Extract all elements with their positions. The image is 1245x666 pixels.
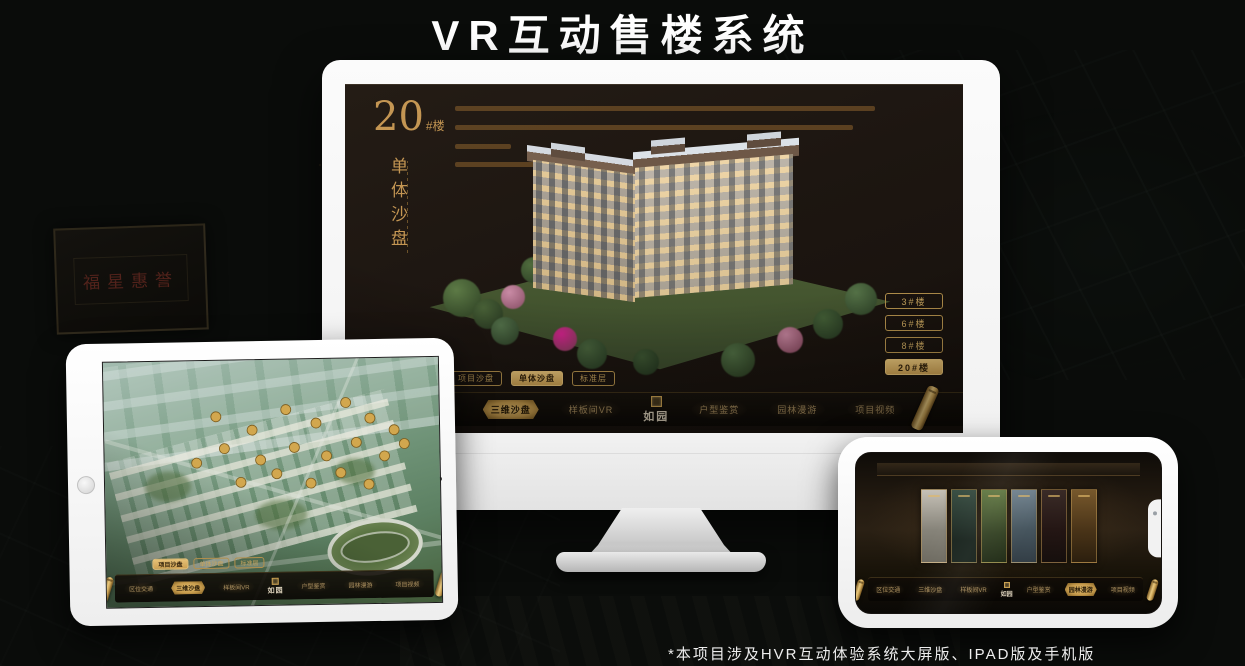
tree: [577, 339, 607, 369]
scroll-icon[interactable]: [1145, 578, 1158, 601]
nav-item-project-video[interactable]: 项目视频: [390, 577, 424, 591]
floor-button-6[interactable]: 6#楼: [885, 315, 943, 331]
subtab-single-sandbox[interactable]: 单体沙盘: [193, 558, 229, 570]
building-facade-left: [533, 160, 635, 302]
scene-panel[interactable]: [1011, 489, 1037, 563]
nav-item-garden-roam[interactable]: 园林漫游: [1065, 583, 1097, 596]
roof-gable: [651, 138, 685, 155]
subtab-standard-floor[interactable]: 标准层: [572, 371, 615, 386]
nav-item-3d-sandbox[interactable]: 三维沙盘: [914, 583, 946, 596]
nav-item-location[interactable]: 区位交通: [872, 583, 904, 596]
page-title: VR互动售楼系统: [0, 2, 1245, 63]
description-line: [455, 125, 853, 130]
nav-item-3d-sandbox[interactable]: 三维沙盘: [171, 581, 205, 595]
scene-panel[interactable]: [981, 489, 1007, 563]
tablet-device: 项目沙盘 单体沙盘 标准层 区位交通 三维沙盘 样板间VR 如园 户型鉴赏 园林…: [66, 338, 459, 627]
flower-tree: [501, 285, 525, 309]
nav-item-unit-gallery[interactable]: 户型鉴赏: [1023, 583, 1055, 596]
nav-item-project-video[interactable]: 项目视频: [1107, 583, 1139, 596]
subtab-project-sandbox[interactable]: 项目沙盘: [450, 371, 502, 386]
app-logo-text: 如园: [1001, 589, 1013, 598]
scene-panel[interactable]: [1041, 489, 1067, 563]
scene-panel[interactable]: [1071, 489, 1097, 563]
app-logo-text: 如园: [267, 585, 283, 595]
scene-panel[interactable]: [921, 489, 947, 563]
home-button[interactable]: [77, 476, 95, 494]
monitor-stand: [586, 508, 736, 558]
tree: [633, 349, 659, 375]
tree: [813, 309, 843, 339]
floor-button-group: 3#楼 6#楼 8#楼 20#楼: [885, 293, 943, 375]
nav-item-3d-sandbox[interactable]: 三维沙盘: [483, 400, 539, 419]
subtitle-divider: [407, 161, 408, 253]
app-logo: 如园: [267, 577, 283, 595]
floor-button-8[interactable]: 8#楼: [885, 337, 943, 353]
nav-item-showroom-vr[interactable]: 样板间VR: [218, 580, 255, 594]
app-logo: 如园: [643, 396, 669, 424]
nav-item-unit-gallery[interactable]: 户型鉴赏: [296, 579, 330, 593]
background-plaque: 福星惠誉: [53, 223, 209, 334]
monitor-stand-base: [556, 552, 766, 572]
nav-item-showroom-vr[interactable]: 样板间VR: [561, 400, 622, 419]
subtab-project-sandbox[interactable]: 项目沙盘: [152, 558, 188, 570]
phone-notch: [1148, 499, 1161, 557]
footnote: *本项目涉及HVR互动体验系统大屏版、IPAD版及手机版: [668, 643, 1095, 664]
page: 福星惠誉 VR互动售楼系统 20#楼 单体沙盘: [0, 0, 1245, 666]
building-facade-right: [635, 154, 793, 298]
building-model-3d[interactable]: [425, 137, 895, 407]
roof-gable: [747, 132, 781, 149]
flower-tree: [777, 327, 803, 353]
phone-device: 区位交通 三维沙盘 样板间VR 如园 户型鉴赏 园林漫游 项目视频: [838, 437, 1178, 628]
app-logo-text: 如园: [643, 408, 669, 424]
seal-icon: [1004, 582, 1010, 588]
tree: [845, 283, 877, 315]
nav-item-garden-roam[interactable]: 园林漫游: [343, 578, 377, 592]
camera-icon: [1153, 511, 1157, 515]
nav-item-unit-gallery[interactable]: 户型鉴赏: [691, 400, 747, 419]
sandbox-subtabs: 项目沙盘 单体沙盘 标准层: [450, 371, 615, 386]
tablet-screen: 项目沙盘 单体沙盘 标准层 区位交通 三维沙盘 样板间VR 如园 户型鉴赏 园林…: [102, 356, 443, 609]
description-line: [455, 106, 875, 111]
tree: [721, 343, 755, 377]
seal-icon: [272, 577, 279, 584]
tablet-subtabs: 项目沙盘 单体沙盘 标准层: [152, 557, 264, 570]
nav-item-location[interactable]: 区位交通: [124, 582, 158, 596]
seal-icon: [651, 396, 662, 407]
app-logo: 如园: [1001, 582, 1013, 598]
floor-button-20[interactable]: 20#楼: [885, 359, 943, 375]
scene-panel[interactable]: [951, 489, 977, 563]
subtab-standard-floor[interactable]: 标准层: [234, 557, 264, 569]
nav-item-showroom-vr[interactable]: 样板间VR: [956, 583, 990, 596]
scroll-icon[interactable]: [855, 578, 866, 601]
plaque-text: 福星惠誉: [83, 265, 180, 293]
phone-screen: 区位交通 三维沙盘 样板间VR 如园 户型鉴赏 园林漫游 项目视频: [855, 452, 1162, 614]
block-heading: 20#楼: [373, 97, 445, 137]
subtab-single-sandbox[interactable]: 单体沙盘: [511, 371, 563, 386]
flower-tree: [553, 327, 577, 351]
block-number-suffix: #楼: [426, 119, 445, 133]
tree: [491, 317, 519, 345]
floor-button-3[interactable]: 3#楼: [885, 293, 943, 309]
interior-ceiling-beam: [877, 463, 1139, 476]
nav-item-garden-roam[interactable]: 园林漫游: [769, 400, 825, 419]
tablet-navbar: 区位交通 三维沙盘 样板间VR 如园 户型鉴赏 园林漫游 项目视频: [115, 569, 434, 603]
block-number: 20: [373, 94, 424, 140]
nav-item-project-video[interactable]: 项目视频: [847, 400, 903, 419]
phone-navbar: 区位交通 三维沙盘 样板间VR 如园 户型鉴赏 园林漫游 项目视频: [868, 577, 1143, 601]
